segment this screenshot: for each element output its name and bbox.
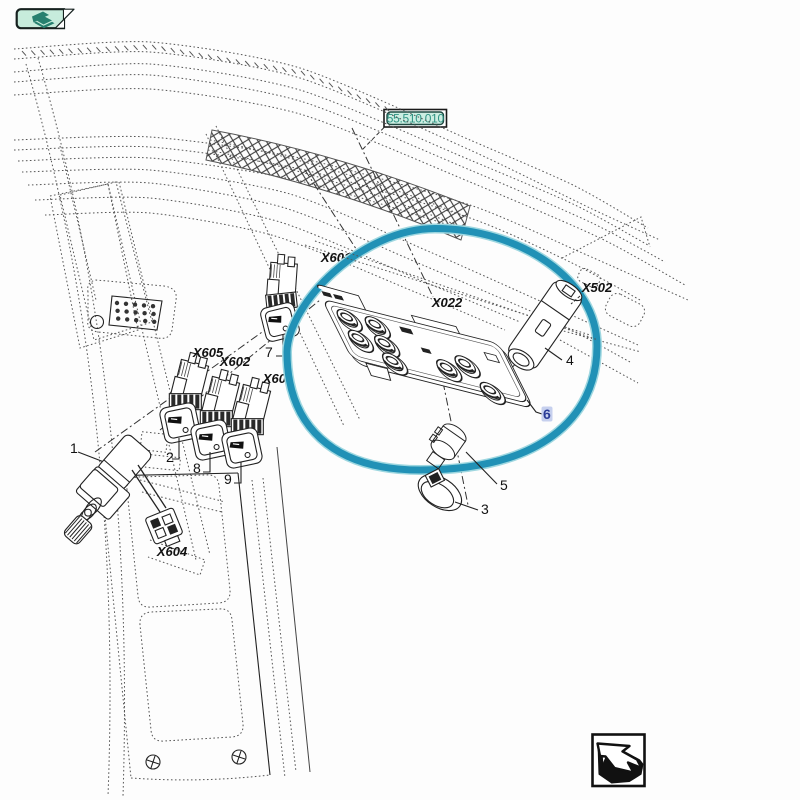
- svg-text:2: 2: [166, 449, 174, 465]
- svg-text:55.510.010: 55.510.010: [387, 112, 445, 126]
- svg-text:4: 4: [566, 352, 574, 368]
- svg-text:1: 1: [70, 440, 78, 456]
- svg-text:X602: X602: [219, 354, 251, 369]
- svg-text:7: 7: [265, 344, 273, 360]
- svg-text:X604: X604: [156, 544, 188, 559]
- svg-text:3: 3: [481, 501, 489, 517]
- svg-text:9: 9: [224, 471, 232, 487]
- svg-text:X022: X022: [431, 295, 463, 310]
- svg-text:X502: X502: [581, 280, 613, 295]
- svg-text:5: 5: [500, 477, 508, 493]
- svg-text:6: 6: [543, 406, 551, 422]
- svg-text:8: 8: [193, 460, 201, 476]
